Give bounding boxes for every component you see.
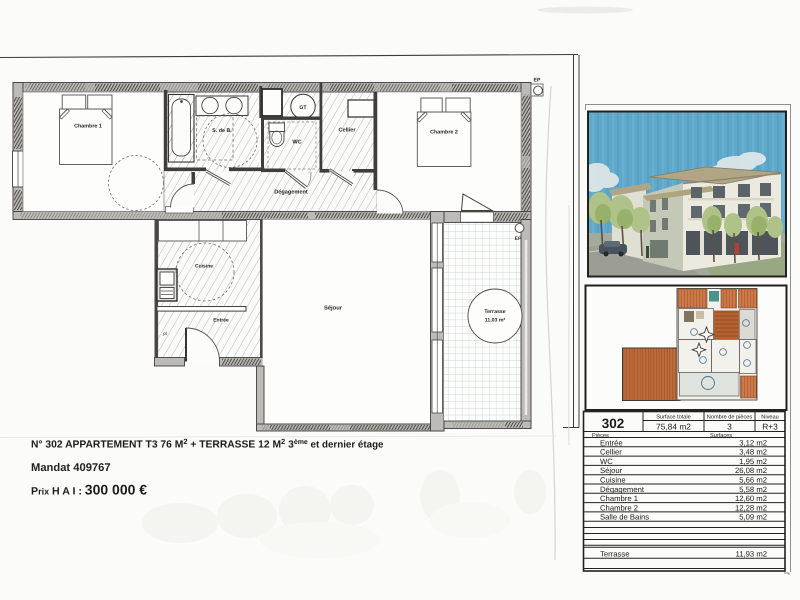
svg-text:GT: GT (299, 105, 307, 111)
svg-text:26,08 m2: 26,08 m2 (735, 466, 767, 475)
svg-text:11,93 m2: 11,93 m2 (736, 549, 767, 558)
svg-text:R+3: R+3 (762, 422, 778, 432)
svg-text:Nombre de pièces: Nombre de pièces (707, 414, 753, 421)
svg-text:3,48 m2: 3,48 m2 (739, 448, 767, 457)
svg-text:EP: EP (515, 236, 522, 242)
svg-text:WC: WC (292, 140, 301, 146)
svg-text:Dégagement: Dégagement (274, 189, 308, 196)
svg-text:5,58 m2: 5,58 m2 (739, 485, 767, 494)
svg-text:1,95 m2: 1,95 m2 (739, 457, 767, 466)
svg-text:5,09 m2: 5,09 m2 (739, 513, 767, 522)
svg-text:Salle de Bains: Salle de Bains (600, 513, 649, 522)
svg-text:5,66 m2: 5,66 m2 (739, 476, 767, 485)
svg-text:Chambre 2: Chambre 2 (600, 503, 638, 512)
svg-text:Chambre 1: Chambre 1 (74, 124, 102, 130)
svg-text:Cuisine: Cuisine (195, 264, 213, 270)
svg-text:Surfaces: Surfaces (710, 432, 732, 439)
svg-text:12,60 m2: 12,60 m2 (735, 494, 767, 503)
svg-text:N° 302 APPARTEMENT T3 76 M2: N° 302 APPARTEMENT T3 76 M2 + TERRASSE 1… (31, 437, 384, 451)
svg-text:12,28 m2: 12,28 m2 (735, 503, 767, 512)
svg-text:Mandat 409767: Mandat 409767 (31, 462, 111, 474)
svg-text:75,84 m2: 75,84 m2 (656, 422, 691, 432)
svg-text:Séjour: Séjour (600, 466, 623, 475)
svg-text:Chambre 2: Chambre 2 (430, 130, 458, 136)
svg-text:302: 302 (602, 416, 625, 431)
svg-text:S. de B.: S. de B. (212, 128, 232, 134)
svg-text:Terrasse: Terrasse (484, 309, 505, 315)
svg-text:EP: EP (534, 78, 541, 84)
svg-text:Cuisine: Cuisine (600, 476, 626, 485)
svg-text:Cellier: Cellier (600, 448, 622, 457)
svg-text:Séjour: Séjour (324, 305, 343, 312)
svg-text:11,03 m²: 11,03 m² (485, 318, 506, 324)
svg-text:3,12 m2: 3,12 m2 (739, 438, 767, 447)
svg-text:3: 3 (727, 422, 732, 432)
svg-text:Surface totale: Surface totale (656, 414, 691, 421)
svg-text:Terrasse: Terrasse (600, 549, 629, 558)
svg-text:Cellier: Cellier (338, 127, 356, 134)
svg-text:Chambre 1: Chambre 1 (600, 494, 638, 503)
svg-text:Niveau: Niveau (761, 414, 778, 421)
svg-text:Dégagement: Dégagement (600, 485, 645, 494)
svg-text:pl: pl (163, 331, 167, 336)
svg-text:WC: WC (600, 457, 613, 466)
svg-text:Entrée: Entrée (600, 438, 623, 447)
svg-text:Entrée: Entrée (213, 318, 229, 324)
